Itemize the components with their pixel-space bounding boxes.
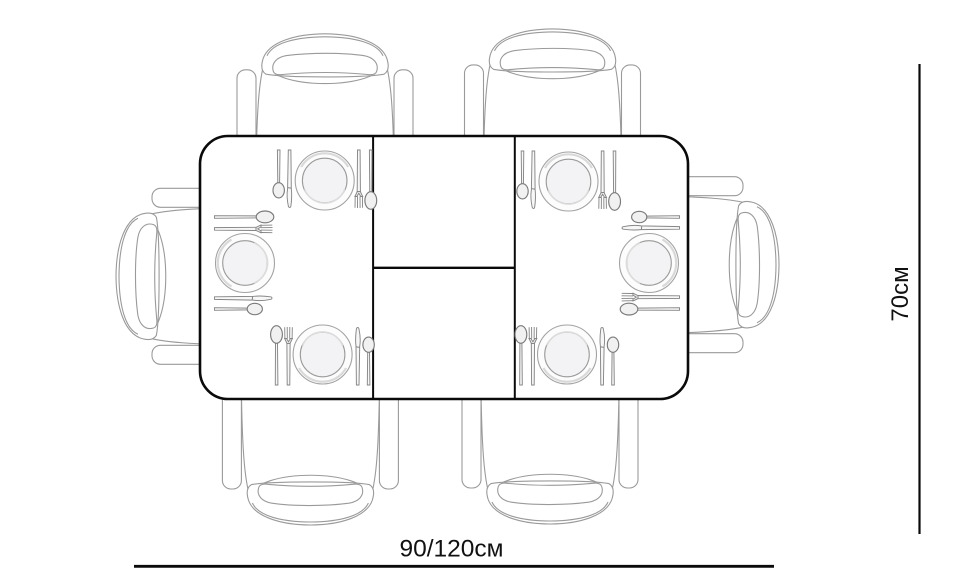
svg-text:70см: 70см	[887, 266, 914, 321]
svg-text:90/120см: 90/120см	[399, 536, 503, 563]
